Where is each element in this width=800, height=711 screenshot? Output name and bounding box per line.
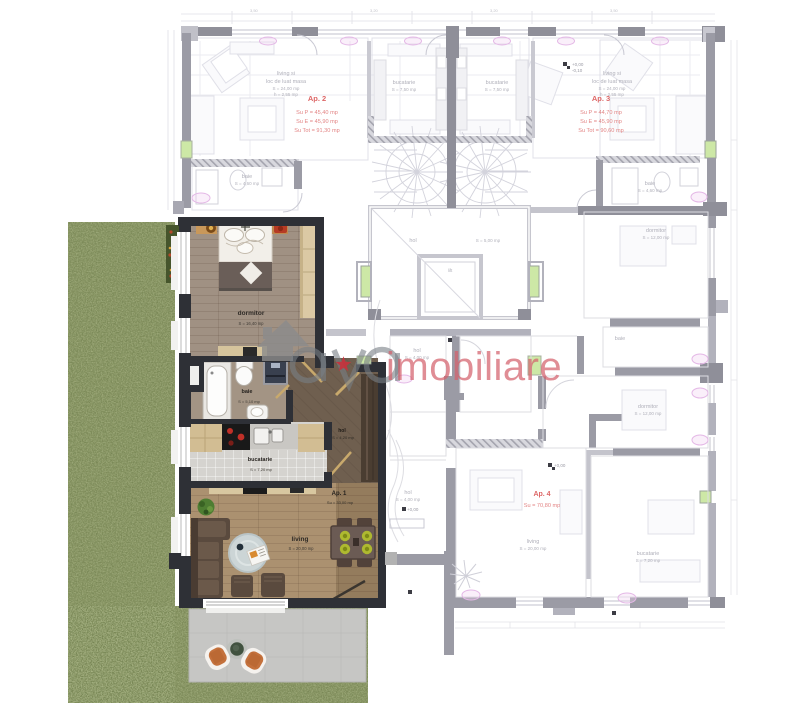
svg-text:Su Tot = 91,30 mp: Su Tot = 91,30 mp — [294, 128, 339, 134]
svg-text:imobiliare: imobiliare — [386, 345, 562, 389]
svg-text:dormitor: dormitor — [238, 310, 265, 317]
svg-text:hol: hol — [404, 490, 411, 496]
svg-text:living si: living si — [277, 71, 295, 77]
svg-text:living si: living si — [603, 71, 621, 77]
svg-text:bucatarie: bucatarie — [637, 551, 660, 557]
svg-text:S = 4,60 mp: S = 4,60 mp — [235, 181, 260, 186]
svg-text:living: living — [292, 536, 309, 543]
svg-text:S = 7,20 mp: S = 7,20 mp — [250, 467, 272, 472]
svg-text:Su E = 45,90 mp: Su E = 45,90 mp — [580, 119, 622, 125]
svg-text:S = 5,00 mp: S = 5,00 mp — [476, 238, 501, 243]
svg-text:baie: baie — [615, 336, 625, 342]
svg-text:dormitor: dormitor — [638, 404, 658, 410]
svg-text:S = 4,20 mp: S = 4,20 mp — [332, 435, 354, 440]
svg-text:loc de luat masa: loc de luat masa — [592, 79, 633, 85]
svg-text:Su = 70,80 mp: Su = 70,80 mp — [524, 503, 561, 509]
svg-text:bucatarie: bucatarie — [393, 80, 416, 86]
svg-text:bucatarie: bucatarie — [248, 457, 272, 463]
svg-text:h = 2,55 mp: h = 2,55 mp — [274, 92, 298, 97]
svg-text:hol: hol — [409, 238, 416, 244]
svg-text:S = 20,00 mp: S = 20,00 mp — [520, 546, 547, 551]
svg-text:S = 12,00 mp: S = 12,00 mp — [635, 411, 662, 416]
svg-text:S = 20,00 mp: S = 20,00 mp — [288, 546, 314, 551]
svg-text:Ap. 2: Ap. 2 — [308, 94, 326, 103]
svg-text:S = 16,40 mp: S = 16,40 mp — [238, 321, 264, 326]
svg-text:+0,00: +0,00 — [572, 62, 584, 67]
svg-text:S = 5,10 mp: S = 5,10 mp — [238, 399, 260, 404]
svg-text:Su P = 44,70 mp: Su P = 44,70 mp — [580, 110, 622, 116]
svg-text:lift: lift — [448, 268, 453, 273]
svg-text:3,50: 3,50 — [250, 8, 259, 13]
svg-text:loc de luat masa: loc de luat masa — [266, 79, 307, 85]
svg-text:living: living — [527, 539, 540, 545]
svg-text:Su = 33,00 mp: Su = 33,00 mp — [327, 500, 354, 505]
svg-text:3,20: 3,20 — [490, 8, 499, 13]
svg-text:3,50: 3,50 — [610, 8, 619, 13]
svg-text:S = 7,50 mp: S = 7,50 mp — [392, 87, 417, 92]
svg-text:S = 4,60 mp: S = 4,60 mp — [638, 188, 663, 193]
svg-text:dormitor: dormitor — [646, 228, 666, 234]
svg-text:S = 7,50 mp: S = 7,50 mp — [485, 87, 510, 92]
svg-text:-0,10: -0,10 — [572, 68, 583, 73]
svg-text:Su Tot = 90,60 mp: Su Tot = 90,60 mp — [578, 128, 623, 134]
svg-text:Su P = 45,40 mp: Su P = 45,40 mp — [296, 110, 338, 116]
svg-text:S = 4,00 mp: S = 4,00 mp — [396, 497, 421, 502]
svg-text:S = 24,00 mp: S = 24,00 mp — [273, 86, 300, 91]
svg-text:Ap. 3: Ap. 3 — [592, 94, 610, 103]
svg-text:hol: hol — [338, 428, 346, 434]
svg-text:+0,00: +0,00 — [554, 463, 566, 468]
svg-text:baie: baie — [242, 174, 252, 180]
svg-text:+0,00: +0,00 — [407, 507, 419, 512]
svg-text:baie: baie — [645, 181, 655, 187]
svg-text:S = 12,00 mp: S = 12,00 mp — [643, 235, 670, 240]
svg-text:baie: baie — [241, 389, 252, 395]
svg-text:S = 24,00 mp: S = 24,00 mp — [599, 86, 626, 91]
svg-text:S = 7,20 mp: S = 7,20 mp — [636, 558, 661, 563]
svg-text:Ap. 4: Ap. 4 — [533, 491, 550, 498]
svg-text:bucatarie: bucatarie — [486, 80, 509, 86]
svg-text:Ap. 1: Ap. 1 — [332, 491, 347, 497]
svg-text:3,20: 3,20 — [370, 8, 379, 13]
svg-text:Su E = 45,90 mp: Su E = 45,90 mp — [296, 119, 338, 125]
